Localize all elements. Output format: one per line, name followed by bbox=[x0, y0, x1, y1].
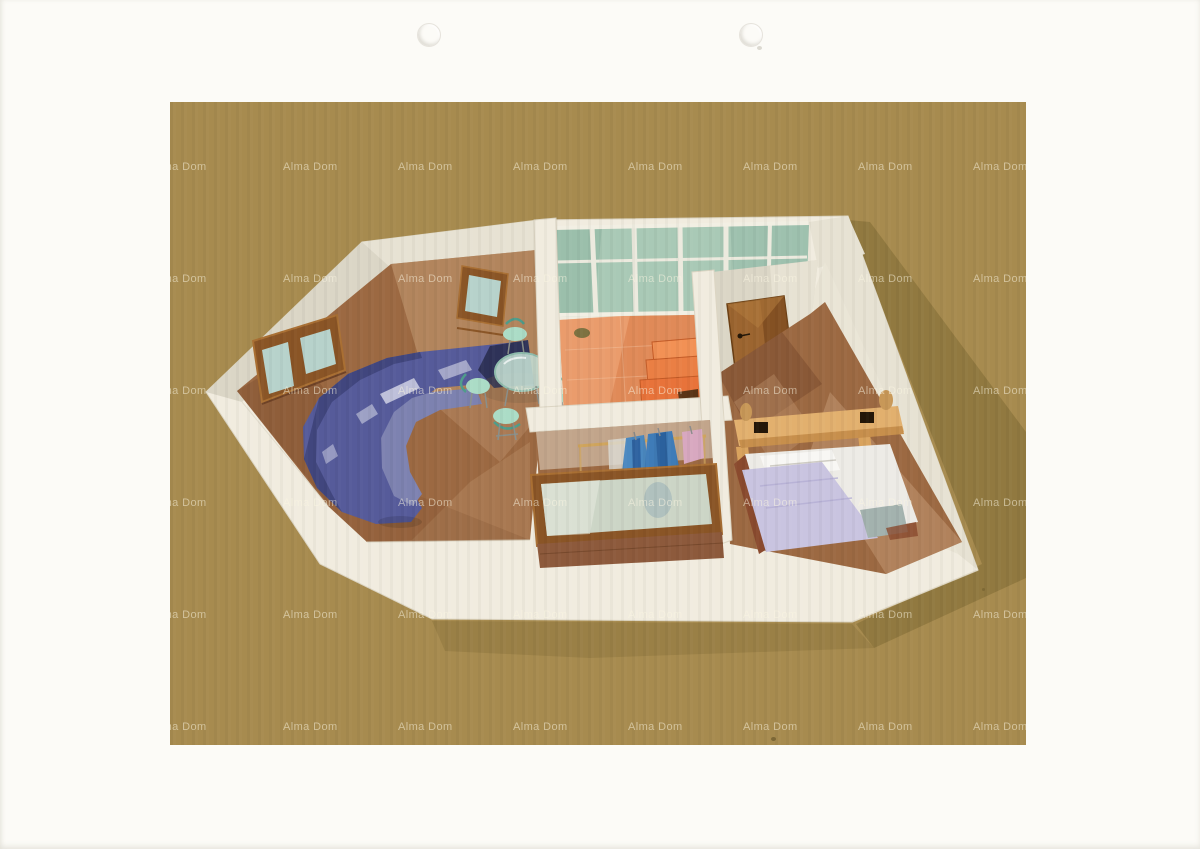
terrace-plant-pot bbox=[574, 328, 590, 338]
punch-hole-right bbox=[739, 23, 763, 47]
closet-room bbox=[531, 420, 724, 568]
punch-hole-left bbox=[417, 23, 441, 47]
double-bed bbox=[734, 444, 918, 554]
scanned-page: Alma DomAlma DomAlma DomAlma DomAlma Dom… bbox=[0, 0, 1200, 849]
scan-speck bbox=[982, 588, 985, 591]
scan-speck bbox=[771, 737, 776, 741]
vase-left bbox=[740, 403, 752, 421]
scan-speck bbox=[757, 46, 762, 50]
photo-area: Alma DomAlma DomAlma DomAlma DomAlma Dom… bbox=[170, 102, 1026, 745]
floor-plan-rendering bbox=[170, 102, 1026, 745]
closet-window bbox=[531, 464, 722, 546]
vase-right bbox=[879, 390, 893, 410]
